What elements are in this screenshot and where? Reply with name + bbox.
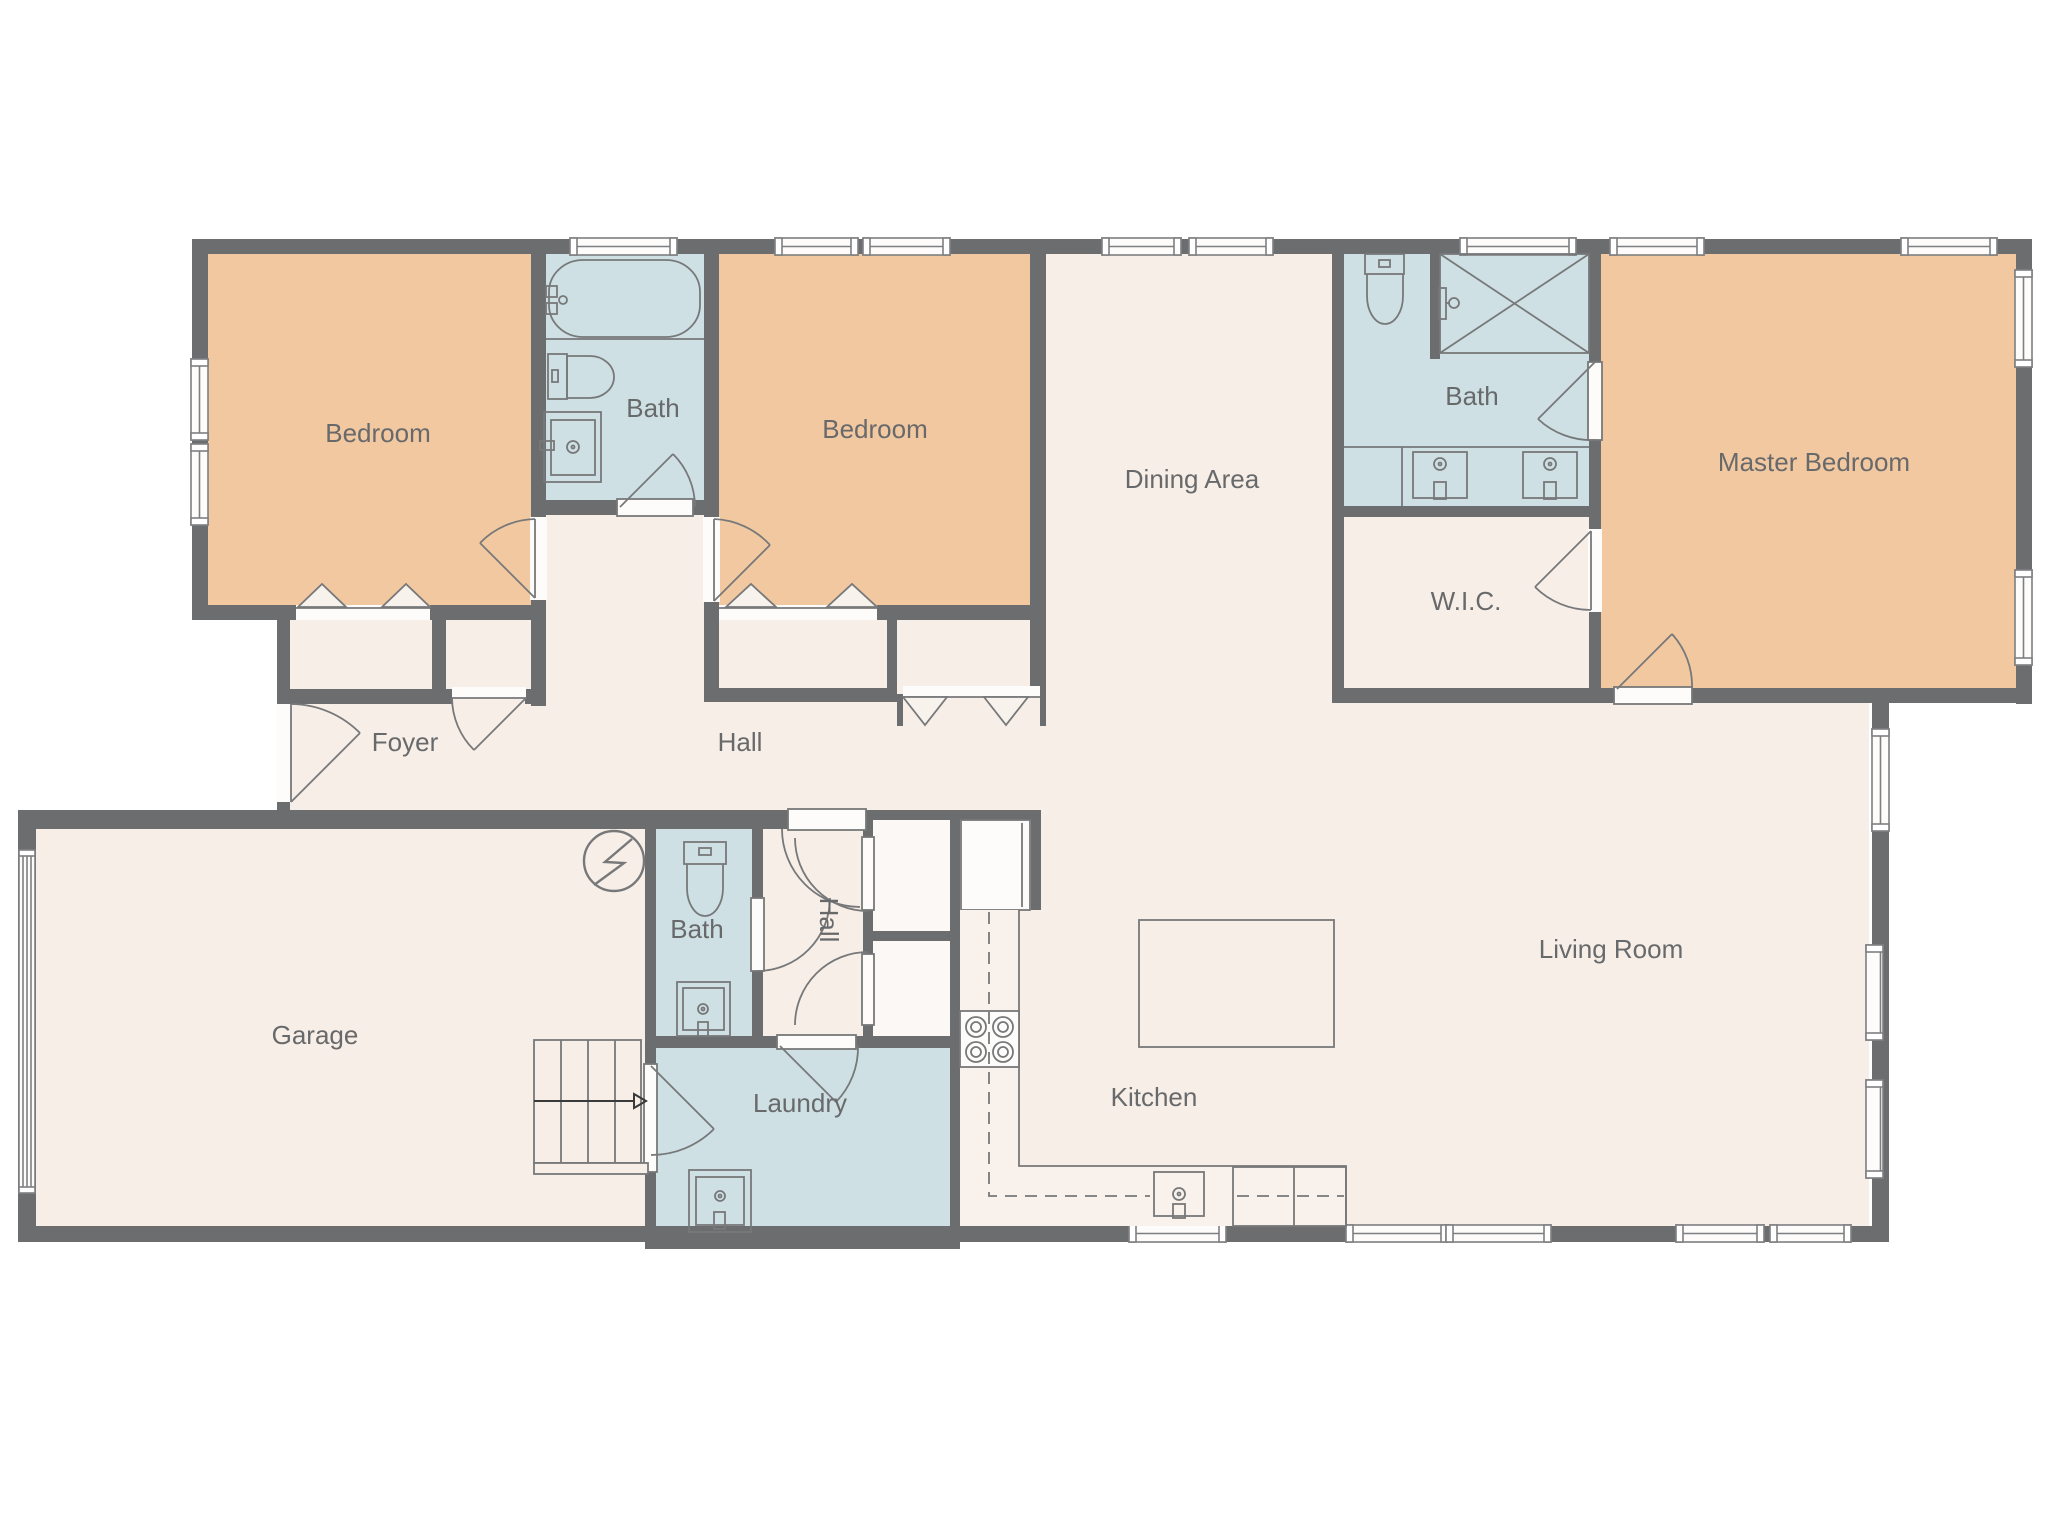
svg-text:Living Room: Living Room <box>1539 934 1684 964</box>
svg-text:Hall: Hall <box>718 727 763 757</box>
svg-text:W.I.C.: W.I.C. <box>1431 586 1502 616</box>
svg-text:Kitchen: Kitchen <box>1111 1082 1198 1112</box>
svg-text:Bath: Bath <box>670 914 724 944</box>
svg-text:Dining Area: Dining Area <box>1125 464 1260 494</box>
svg-text:Laundry: Laundry <box>753 1088 847 1118</box>
svg-text:Foyer: Foyer <box>372 727 439 757</box>
svg-text:Bath: Bath <box>626 393 680 423</box>
svg-text:Bedroom: Bedroom <box>325 418 431 448</box>
svg-text:Hall: Hall <box>814 898 844 943</box>
svg-text:Bath: Bath <box>1445 381 1499 411</box>
svg-text:Master Bedroom: Master Bedroom <box>1718 447 1910 477</box>
svg-text:Garage: Garage <box>272 1020 359 1050</box>
svg-text:Bedroom: Bedroom <box>822 414 928 444</box>
